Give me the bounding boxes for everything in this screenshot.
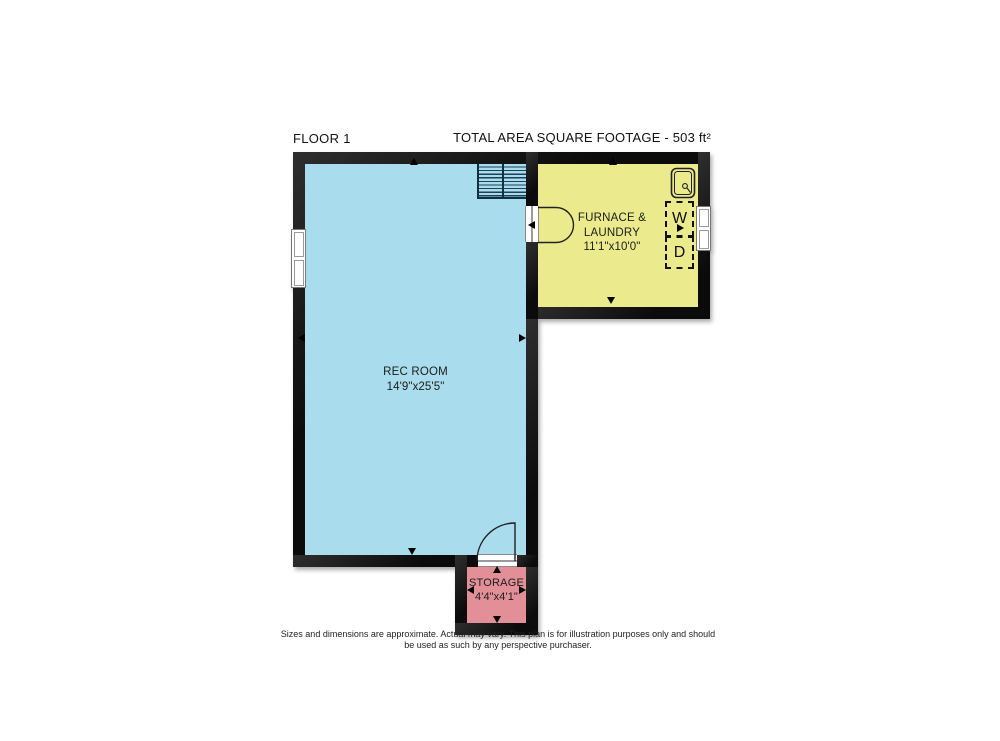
- dimension-arrow-furnace-right: [677, 224, 684, 232]
- dimension-arrow-rec-bottom: [408, 548, 416, 555]
- disclaimer-text: Sizes and dimensions are approximate. Ac…: [280, 629, 716, 652]
- furnace-laundry-name: FURNACE & LAUNDRY: [562, 211, 662, 240]
- dimension-arrow-furnace-left: [528, 221, 535, 229]
- dimension-arrow-rec-left: [298, 334, 305, 342]
- dimension-arrow-storage-top: [493, 566, 501, 573]
- dimension-arrow-furnace-top: [609, 158, 617, 165]
- wall-divider-upper: [526, 152, 538, 206]
- wall-left: [293, 152, 305, 567]
- wall-top: [293, 152, 710, 164]
- floor-plan-page: FLOOR 1 TOTAL AREA SQUARE FOOTAGE - 503 …: [0, 0, 1000, 741]
- wall-bottom-rec-right: [517, 555, 538, 567]
- stairs-divider: [502, 164, 504, 197]
- dryer-box: D: [665, 236, 694, 269]
- wall-bottom-furnace: [526, 307, 710, 319]
- rec-room-area: [305, 164, 526, 555]
- window-icon-furnace-right: [696, 206, 711, 251]
- window-icon-rec-left: [291, 229, 306, 288]
- wall-right-rec: [526, 319, 538, 567]
- sink-icon: [670, 167, 696, 199]
- dimension-arrow-rec-right: [519, 334, 526, 342]
- furnace-laundry-label: FURNACE & LAUNDRY 11'1"x10'0": [562, 211, 662, 255]
- storage-dimensions: 4'4"x4'1": [467, 590, 526, 604]
- furnace-laundry-dimensions: 11'1"x10'0": [562, 240, 662, 255]
- dimension-arrow-storage-bottom: [493, 616, 501, 623]
- dryer-label: D: [674, 244, 686, 262]
- storage-door-swing-icon: [468, 516, 520, 564]
- storage-name: STORAGE: [467, 576, 526, 590]
- stairs-icon: [477, 164, 526, 199]
- dimension-arrow-rec-top: [410, 158, 418, 165]
- rec-room-label: REC ROOM 14'9"x25'5": [305, 365, 526, 394]
- wall-divider-lower: [526, 242, 538, 319]
- rec-room-name: REC ROOM: [305, 365, 526, 380]
- storage-label: STORAGE 4'4"x4'1": [467, 576, 526, 604]
- rec-room-dimensions: 14'9"x25'5": [305, 380, 526, 395]
- wall-bottom-rec-left: [293, 555, 478, 567]
- dimension-arrow-furnace-bottom: [607, 297, 615, 304]
